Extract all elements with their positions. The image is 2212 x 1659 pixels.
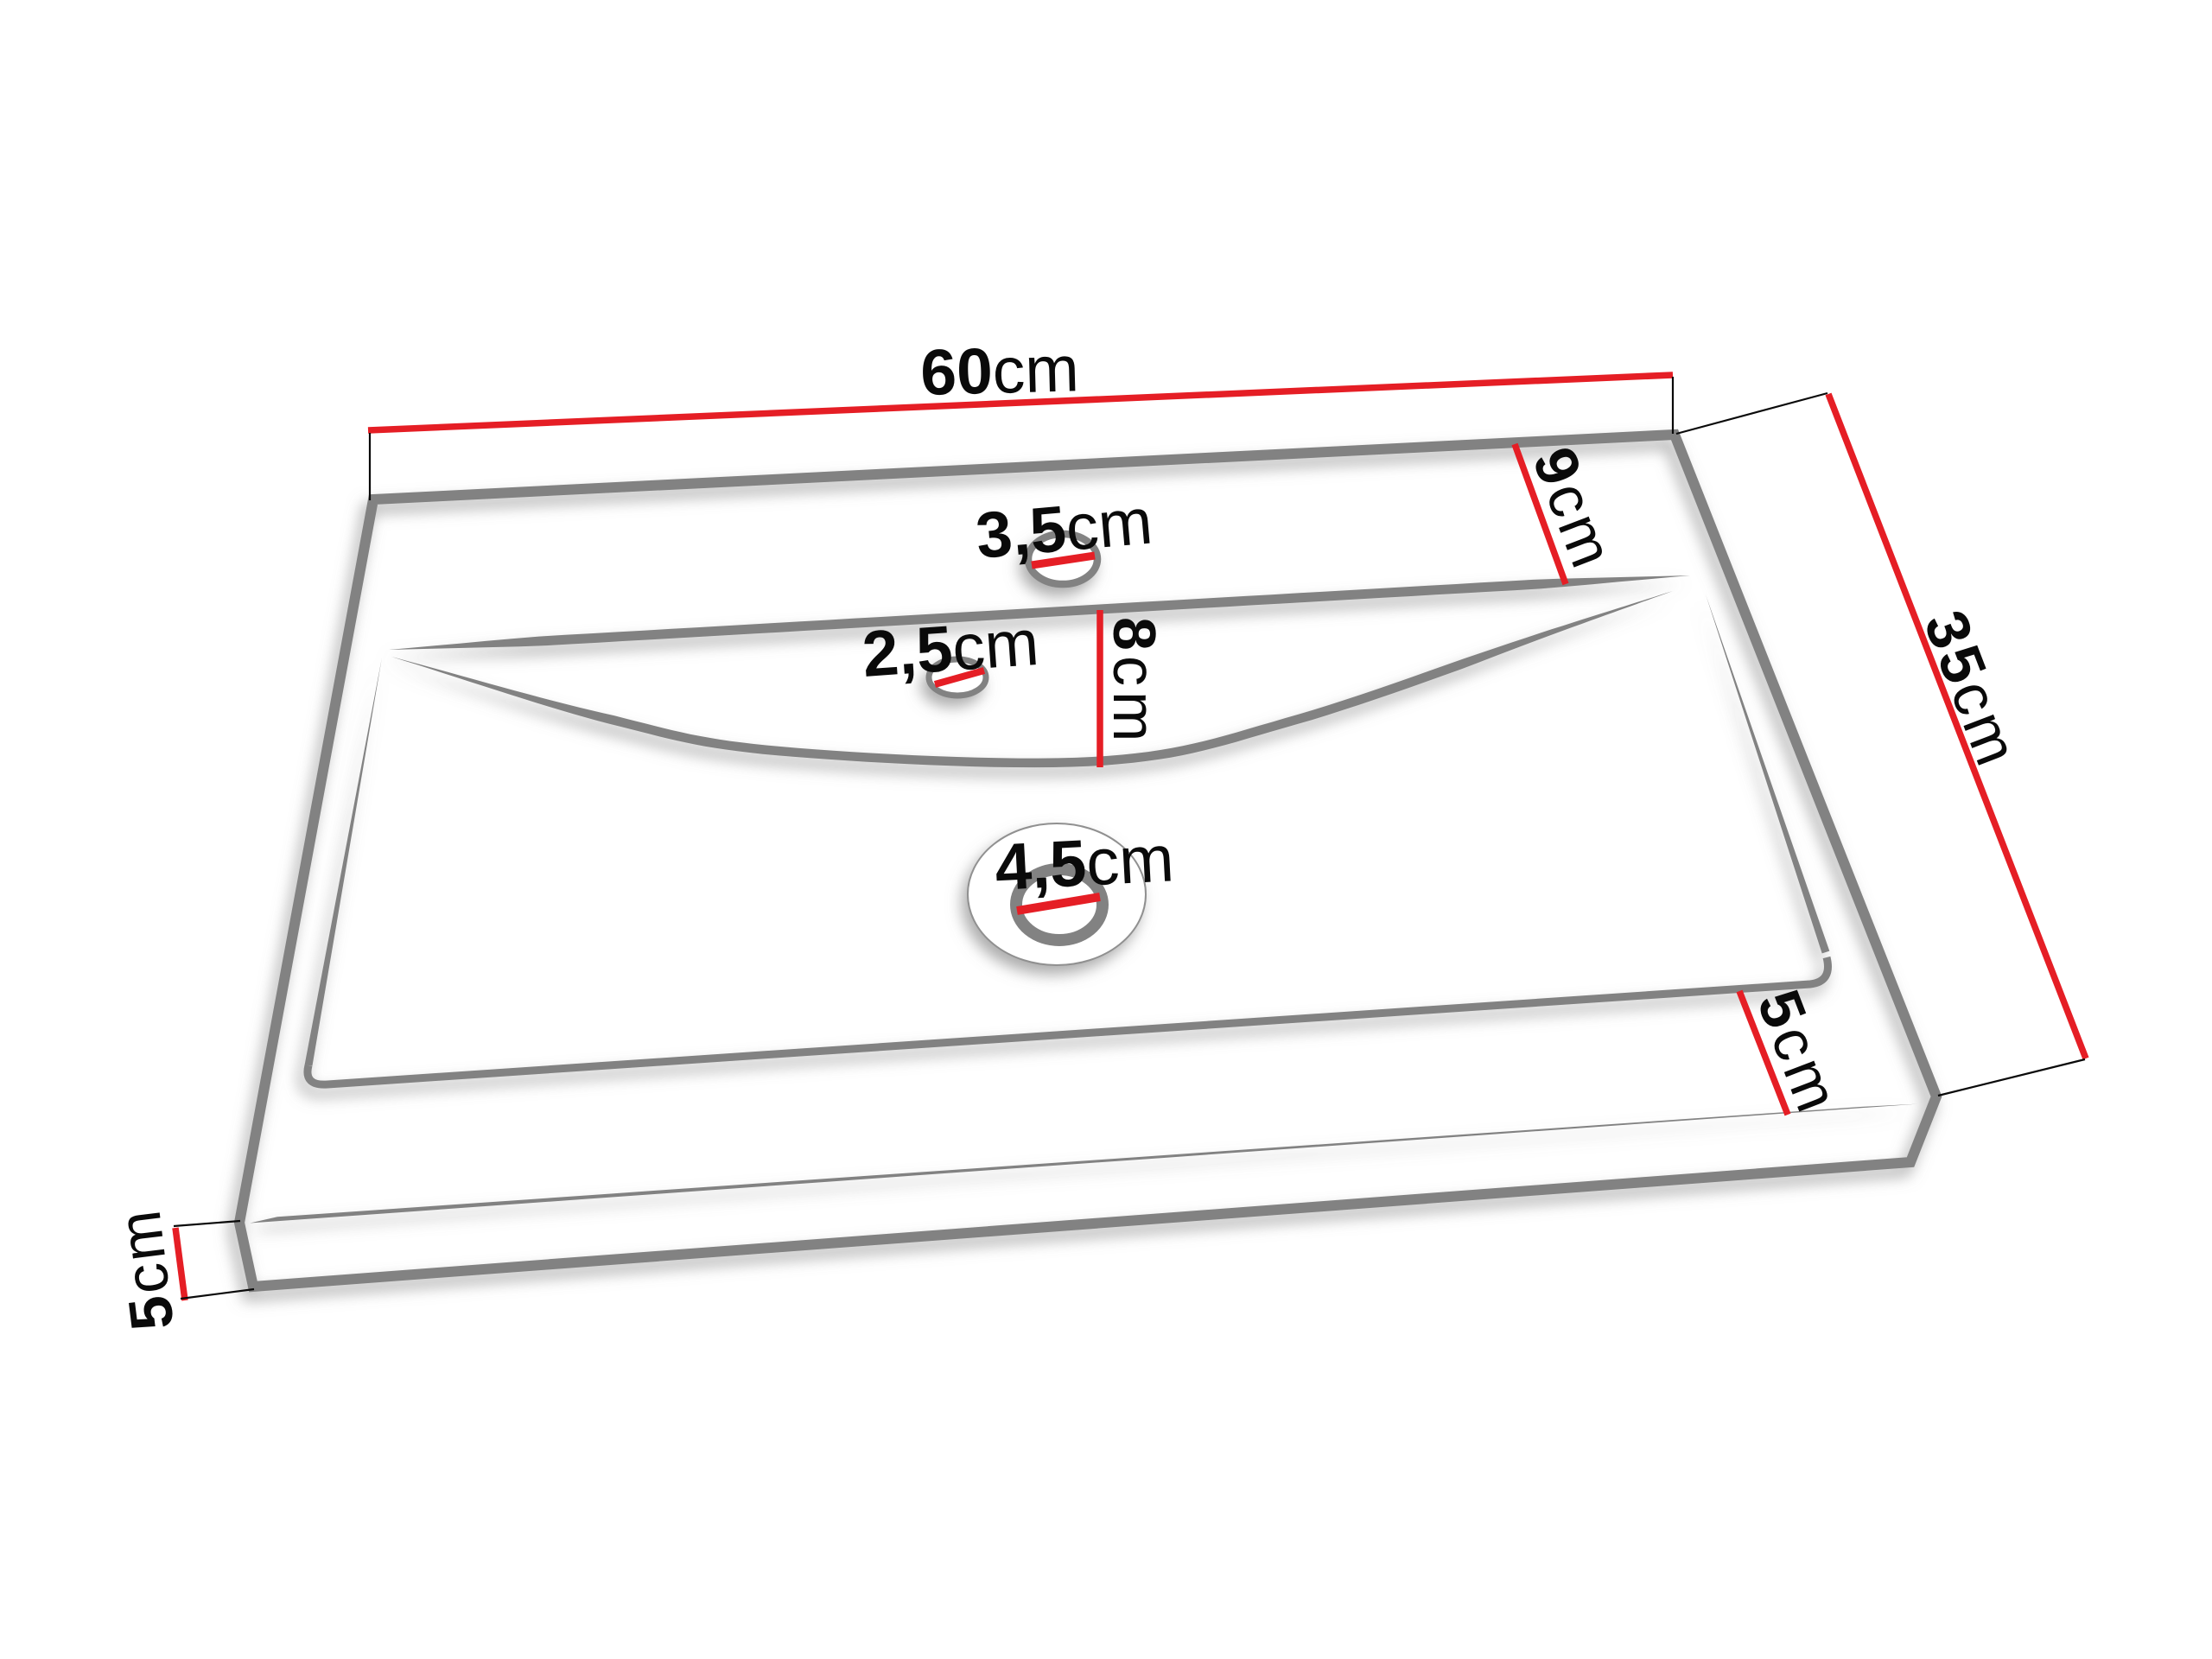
svg-text:5cm: 5cm xyxy=(105,1205,187,1334)
svg-text:60cm: 60cm xyxy=(919,332,1080,409)
svg-text:2,5cm: 2,5cm xyxy=(860,606,1041,690)
svg-text:35cm: 35cm xyxy=(1911,601,2032,777)
svg-text:8cm: 8cm xyxy=(1101,617,1168,747)
svg-text:4,5cm: 4,5cm xyxy=(993,822,1175,905)
svg-text:3,5cm: 3,5cm xyxy=(973,484,1155,571)
